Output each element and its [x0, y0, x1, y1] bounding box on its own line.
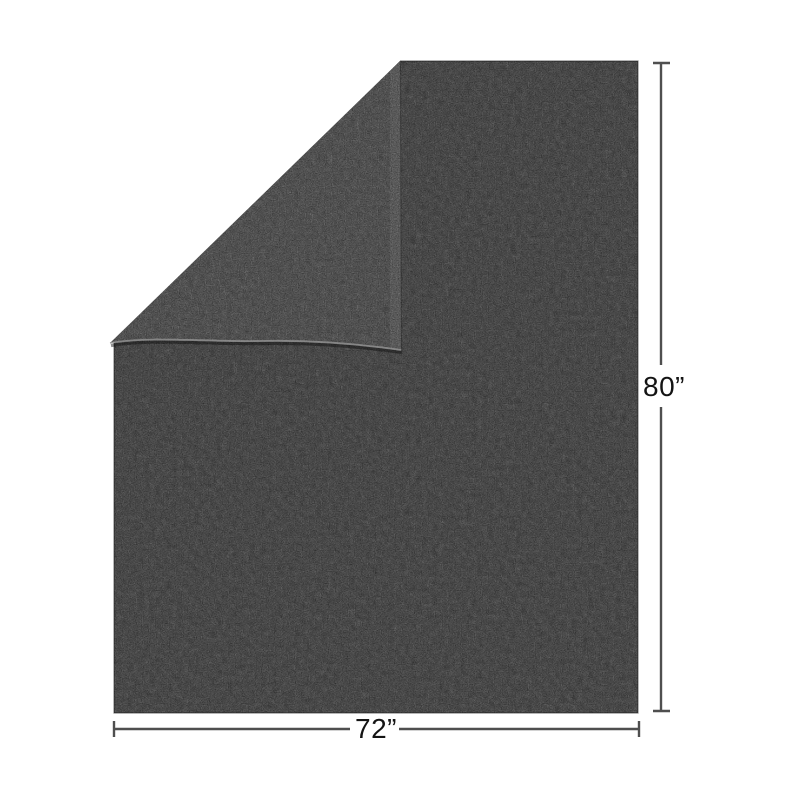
- height-dimension-label: 80”: [643, 371, 685, 402]
- product-image: 80” 72”: [0, 0, 800, 800]
- width-dimension-label: 72”: [355, 713, 397, 744]
- carpet-fold-flap: [54, 28, 415, 365]
- carpet-illustration: 80” 72”: [0, 0, 800, 800]
- fold-mottle-texture: [54, 28, 374, 348]
